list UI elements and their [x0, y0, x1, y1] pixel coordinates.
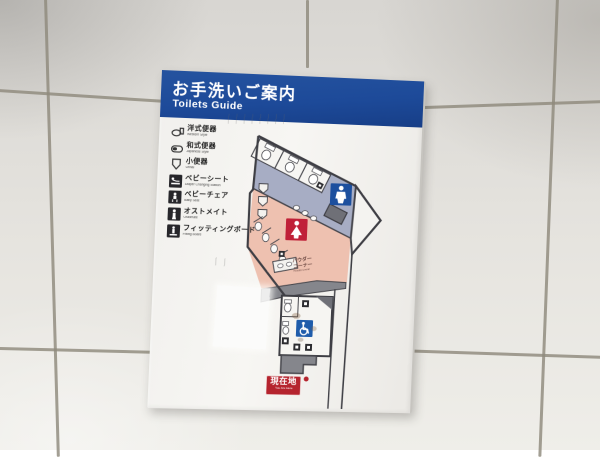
- urinals: [258, 184, 268, 220]
- you-are-here-english: You Are Here: [266, 387, 300, 391]
- legend-item-fitting-board: フィッティングボードFitting Board: [167, 224, 256, 243]
- right-alcove: [350, 186, 382, 255]
- mens-toilet-icon: [330, 183, 352, 205]
- legend-label-en: Urinal: [186, 166, 198, 170]
- legend-label-en: Baby Seat: [184, 199, 208, 203]
- powder-corner-english: Powder Corner: [293, 268, 310, 273]
- legend-label-en: Western Style: [187, 133, 207, 137]
- you-are-here-japanese: 現在地: [266, 376, 301, 388]
- tile-grout-vertical-top: [306, 0, 309, 68]
- legend-label-en: Ostomate: [183, 216, 207, 220]
- legend: 洋式便器Western Style 和式便器Japanese Style 小便器…: [167, 124, 261, 243]
- tile-grout-horizontal-upper-left: [0, 89, 166, 102]
- baby-chair-icon: [168, 191, 181, 204]
- tile-grout-vertical-right: [538, 0, 559, 457]
- worn-sticker-patch: [213, 285, 271, 350]
- tiled-wall: お手洗いご案内 Toilets Guide: [0, 0, 600, 450]
- tile-grout-horizontal-lower-left: [0, 347, 158, 353]
- legend-label-en: Japanese Style: [186, 150, 209, 154]
- ostomate-icon: [167, 207, 180, 220]
- diaper-changing-station-icon: [169, 174, 182, 187]
- tile-grout-vertical-left: [44, 0, 60, 457]
- japanese-toilet-icon: [170, 141, 183, 154]
- pencil-scribble: [225, 114, 290, 124]
- lower-corridor: [281, 355, 317, 374]
- toilet-guide-sign: お手洗いご案内 Toilets Guide: [147, 70, 426, 413]
- tile-grout-horizontal-upper-right: [424, 100, 600, 108]
- womens-toilet-icon: [285, 218, 307, 240]
- tile-grout-horizontal-lower-right: [395, 349, 600, 358]
- you-are-here-marker: 現在地 You Are Here: [266, 376, 301, 396]
- legend-label-en: Diaper Changing Station: [185, 183, 221, 188]
- fitting-board-icon: [167, 224, 180, 237]
- western-toilet-icon: [171, 124, 184, 137]
- legend-label-en: Fitting Board: [183, 232, 223, 237]
- urinal-icon: [170, 158, 183, 171]
